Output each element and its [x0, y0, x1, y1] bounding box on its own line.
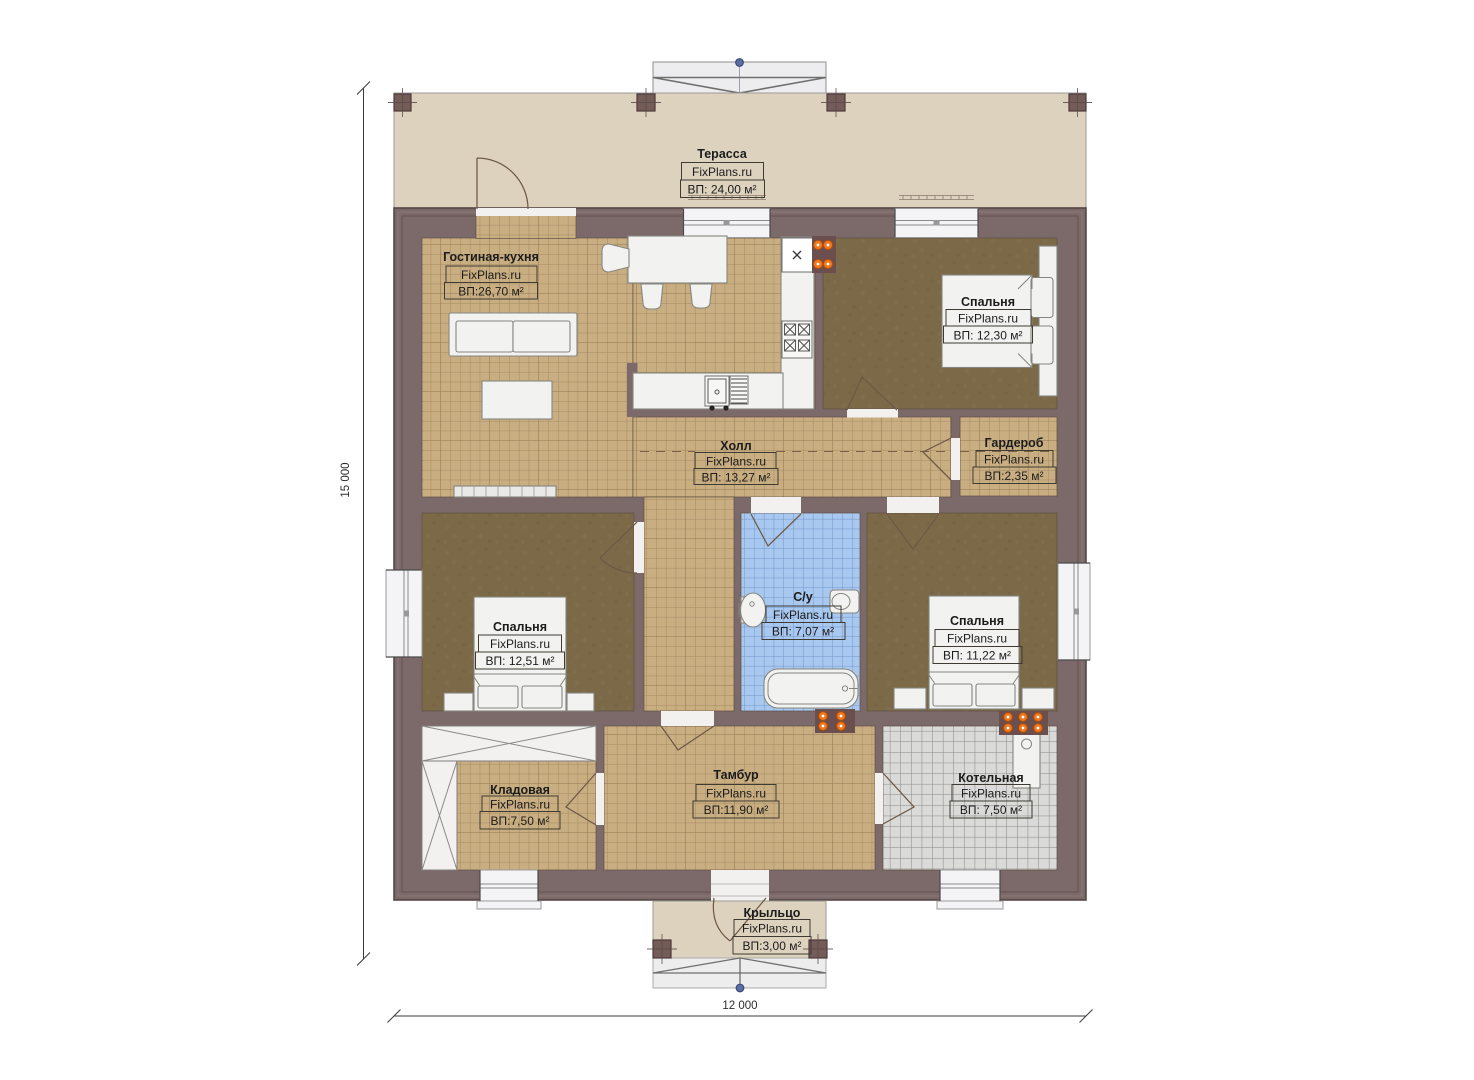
svg-text:ВП: 11,22 м²: ВП: 11,22 м²: [943, 649, 1011, 663]
svg-text:FixPlans.ru: FixPlans.ru: [773, 608, 833, 622]
svg-text:ВП: 24,00 м²: ВП: 24,00 м²: [688, 183, 757, 197]
svg-text:ВП: 12,51 м²: ВП: 12,51 м²: [486, 654, 555, 668]
svg-text:Спальня: Спальня: [493, 620, 547, 634]
svg-text:Спальня: Спальня: [950, 614, 1004, 628]
svg-text:ВП:3,00 м²: ВП:3,00 м²: [743, 939, 802, 953]
svg-text:Крыльцо: Крыльцо: [744, 906, 801, 920]
svg-text:Тамбур: Тамбур: [713, 768, 759, 782]
svg-text:С/у: С/у: [793, 590, 813, 604]
svg-text:ВП:2,35 м²: ВП:2,35 м²: [985, 469, 1044, 483]
svg-text:Терасса: Терасса: [697, 147, 748, 161]
svg-text:Котельная: Котельная: [958, 771, 1023, 785]
svg-text:Кладовая: Кладовая: [490, 783, 550, 797]
svg-text:ВП: 7,07 м²: ВП: 7,07 м²: [772, 625, 834, 639]
svg-text:FixPlans.ru: FixPlans.ru: [947, 632, 1007, 646]
svg-text:FixPlans.ru: FixPlans.ru: [742, 922, 802, 936]
svg-text:ВП: 7,50 м²: ВП: 7,50 м²: [960, 803, 1022, 817]
svg-text:FixPlans.ru: FixPlans.ru: [706, 455, 766, 469]
svg-text:ВП: 13,27 м²: ВП: 13,27 м²: [702, 471, 771, 485]
svg-text:ВП:26,70 м²: ВП:26,70 м²: [458, 285, 524, 299]
svg-text:FixPlans.ru: FixPlans.ru: [490, 637, 550, 651]
svg-text:ВП:11,90 м²: ВП:11,90 м²: [704, 803, 769, 817]
svg-text:FixPlans.ru: FixPlans.ru: [984, 453, 1044, 467]
svg-text:Гостиная-кухня: Гостиная-кухня: [443, 250, 539, 264]
svg-text:FixPlans.ru: FixPlans.ru: [961, 787, 1021, 801]
svg-text:Гардероб: Гардероб: [984, 436, 1043, 450]
svg-text:FixPlans.ru: FixPlans.ru: [692, 165, 752, 179]
svg-text:FixPlans.ru: FixPlans.ru: [490, 798, 550, 812]
svg-text:ВП: 12,30 м²: ВП: 12,30 м²: [954, 329, 1023, 343]
svg-text:Холл: Холл: [720, 439, 751, 453]
svg-text:Спальня: Спальня: [961, 295, 1015, 309]
svg-text:15 000: 15 000: [340, 462, 352, 497]
svg-text:FixPlans.ru: FixPlans.ru: [958, 312, 1018, 326]
svg-text:ВП:7,50 м²: ВП:7,50 м²: [491, 814, 550, 828]
svg-text:12 000: 12 000: [722, 1000, 757, 1012]
svg-text:FixPlans.ru: FixPlans.ru: [706, 787, 766, 801]
svg-text:FixPlans.ru: FixPlans.ru: [461, 268, 521, 282]
